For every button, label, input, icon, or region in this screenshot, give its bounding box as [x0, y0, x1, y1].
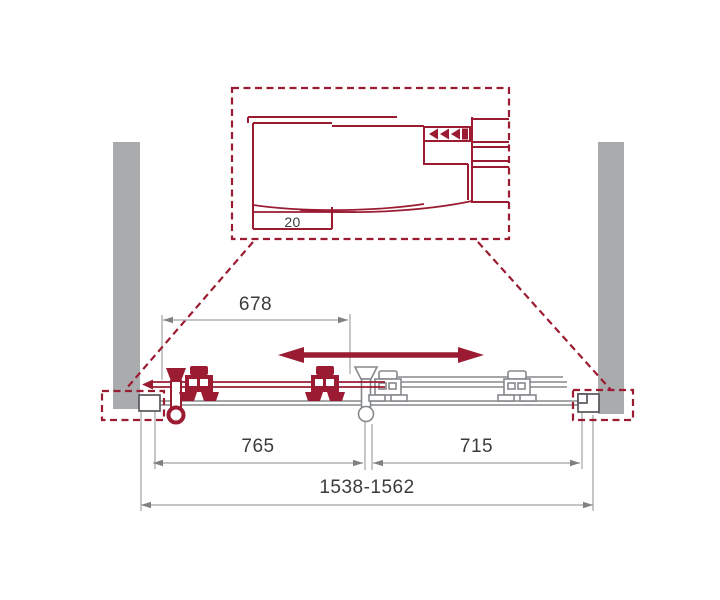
- track-width-label: 678: [163, 295, 348, 315]
- diagram-drawing: [0, 0, 720, 600]
- detail-profile-cross-section: [248, 117, 509, 229]
- right-wall-profile: [578, 394, 599, 412]
- fixed-panel-width-label: 715: [373, 437, 580, 457]
- fixed-panel-roller-left: [369, 371, 407, 401]
- dimension-overall-width: [141, 502, 593, 508]
- dimension-track-width: [163, 317, 348, 323]
- sliding-door-roller-right: [305, 366, 345, 401]
- sliding-panel-width-label: 765: [153, 437, 363, 457]
- dimension-fixed-panel: [373, 460, 580, 466]
- fixed-panel-roller-right: [498, 371, 536, 401]
- dimension-sliding-panel: [153, 460, 363, 466]
- profile-offset-label: 20: [253, 215, 332, 230]
- left-wall: [113, 142, 140, 409]
- right-wall: [598, 142, 624, 414]
- slide-direction-arrow: [278, 347, 484, 363]
- overall-width-label: 1538-1562: [141, 478, 593, 498]
- installation-diagram: 678 20 765 715 1538-1562: [0, 0, 720, 600]
- sliding-door-roller-left: [179, 366, 219, 401]
- left-wall-profile: [139, 395, 160, 411]
